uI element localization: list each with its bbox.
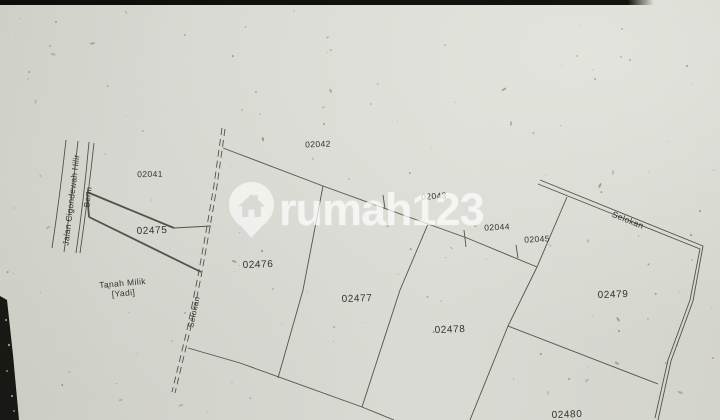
parcel-label-02480: 02480 xyxy=(551,409,582,420)
parcel-label-02477: 02477 xyxy=(341,293,372,305)
torn-scan-edge xyxy=(0,296,19,420)
owner-label-line2: [Yadi] xyxy=(111,287,135,299)
divider-02479-02480 xyxy=(508,326,658,384)
parcel-02475-notch-line xyxy=(174,226,211,228)
parcel-label-02044: 02044 xyxy=(484,221,510,232)
rumah123-logo-icon xyxy=(228,181,275,239)
owner-label: Tanah Milik [Yadi] xyxy=(99,276,147,300)
watermark: rumah123 xyxy=(228,181,484,239)
divider-02045-corner xyxy=(537,197,567,267)
parcel-label-02479: 02479 xyxy=(597,289,628,301)
divider-02478-02479 xyxy=(470,267,537,420)
top-scan-bar xyxy=(0,0,654,5)
parcel-label-02042: 02042 xyxy=(305,139,331,150)
parcel-label-02476: 02476 xyxy=(242,259,273,271)
left-ditch-lines xyxy=(172,128,225,393)
watermark-text: rumah123 xyxy=(279,181,484,239)
parcel-label-02478: 02478 xyxy=(434,324,465,336)
parcel-label-02045: 02045 xyxy=(524,233,550,244)
scanned-parcel-map-photo: 02041 02042 02043 02044 02045 02475 0247… xyxy=(0,0,720,420)
south-boundary-line xyxy=(188,348,394,420)
divider-02477-02478 xyxy=(362,224,428,407)
parcel-label-02041: 02041 xyxy=(137,169,163,179)
parcel-label-02475: 02475 xyxy=(136,225,167,237)
